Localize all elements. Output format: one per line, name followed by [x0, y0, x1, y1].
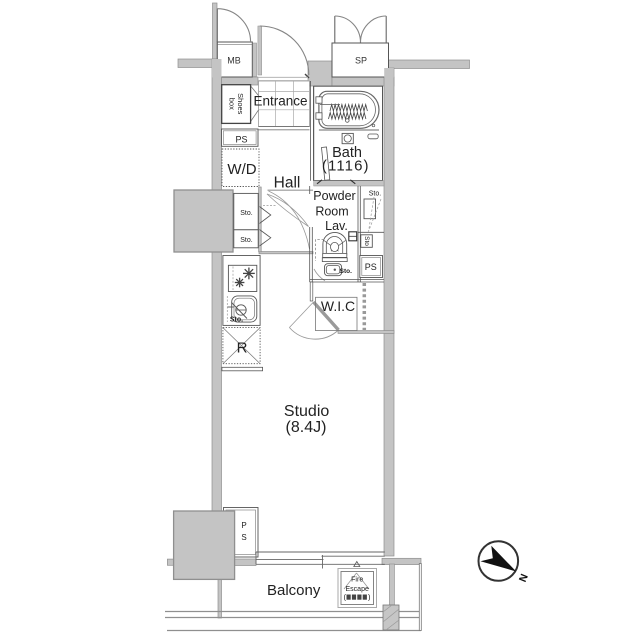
svg-text:Powder: Powder	[313, 189, 355, 203]
svg-text:box: box	[228, 98, 237, 110]
svg-text:Sto.: Sto.	[240, 210, 253, 217]
svg-text:PS: PS	[235, 135, 247, 145]
svg-text:(8.4J): (8.4J)	[286, 419, 327, 436]
svg-text:P: P	[241, 521, 246, 530]
svg-text:PS: PS	[365, 262, 377, 272]
svg-text:Room: Room	[315, 205, 348, 219]
svg-text:SP: SP	[355, 56, 367, 66]
svg-text:S: S	[241, 533, 246, 542]
svg-text:Studio: Studio	[284, 403, 329, 420]
svg-text:W/D: W/D	[227, 161, 256, 178]
svg-text:Entrance: Entrance	[253, 94, 307, 109]
svg-text:Hall: Hall	[274, 174, 301, 191]
svg-text:Sto.: Sto.	[240, 237, 253, 244]
svg-text:Lav.: Lav.	[325, 219, 348, 233]
svg-text:Shoes: Shoes	[236, 93, 245, 115]
svg-text:Escape: Escape	[346, 586, 369, 593]
svg-text:Sto.: Sto.	[369, 191, 382, 198]
svg-text:Sto: Sto	[363, 236, 370, 246]
svg-text:Sto.: Sto.	[340, 268, 352, 275]
svg-text:(1116): (1116)	[322, 158, 370, 175]
svg-text:Fire: Fire	[351, 577, 363, 584]
svg-text:MB: MB	[227, 56, 241, 66]
svg-text:Balcony: Balcony	[267, 582, 321, 599]
svg-text:Sto.: Sto.	[230, 317, 243, 324]
svg-text:W.I.C: W.I.C	[321, 298, 355, 314]
svg-text:R: R	[237, 339, 248, 356]
